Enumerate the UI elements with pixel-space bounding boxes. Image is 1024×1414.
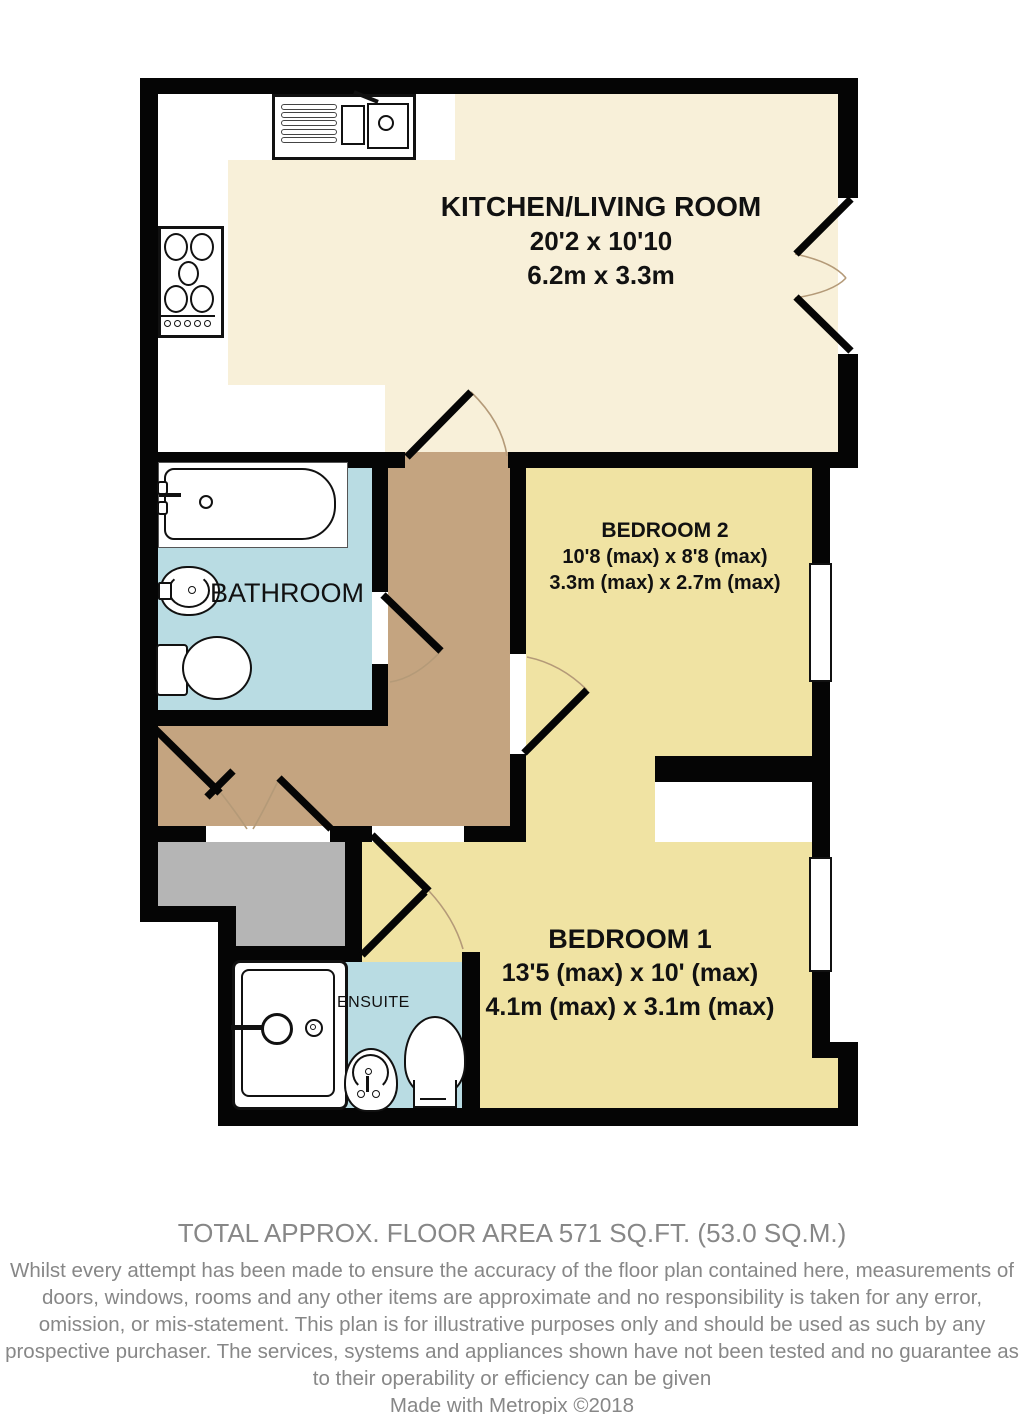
shower-head-icon: [261, 1013, 293, 1045]
wall-hall-bottom-c: [464, 826, 526, 842]
wall-hall-bottom-a: [150, 826, 206, 842]
shower-tray: [232, 960, 348, 1110]
burner-icon: [164, 285, 188, 313]
burner-icon: [190, 233, 214, 261]
room-dims-imperial: 13'5 (max) x 10' (max): [420, 956, 840, 990]
room-dims-metric: 4.1m (max) x 3.1m (max): [420, 990, 840, 1024]
room-name: KITCHEN/LIVING ROOM: [431, 190, 771, 224]
bath-drain-icon: [199, 495, 213, 509]
bedroom2-floor: [526, 468, 812, 758]
wall-bed1-top: [655, 756, 812, 782]
footer: TOTAL APPROX. FLOOR AREA 571 SQ.FT. (53.…: [0, 1218, 1024, 1414]
tub-shape: [164, 468, 336, 540]
floorplan-canvas: KITCHEN/LIVING ROOM 20'2 x 10'10 6.2m x …: [0, 0, 1024, 1414]
room-name: BEDROOM 1: [420, 922, 840, 956]
wall-landing-right: [345, 842, 362, 946]
wall-kitchen-bottom-right: [508, 452, 812, 468]
bathroom-label: BATHROOM: [210, 578, 380, 609]
wall-bottom: [218, 1108, 858, 1126]
room-name: BEDROOM 2: [515, 518, 815, 544]
ensuite-washbasin: [344, 1048, 398, 1112]
room-name: ENSUITE: [337, 994, 427, 1012]
wall-top: [140, 78, 858, 94]
wall-right-kitchen-lower: [838, 354, 858, 468]
metropix-credit: Made with Metropix ©2018: [0, 1392, 1024, 1414]
hob-controls: [161, 315, 215, 329]
sink-divider: [341, 105, 365, 145]
burner-icon: [178, 261, 199, 286]
bedroom1-lobe-floor: [526, 758, 655, 842]
bedroom1-label: BEDROOM 1 13'5 (max) x 10' (max) 4.1m (m…: [420, 922, 840, 1024]
sink-drain-icon: [378, 115, 394, 131]
ensuite-label: ENSUITE: [337, 994, 427, 1012]
wall-bathroom-right-upper: [372, 468, 388, 592]
bathroom-toilet-bowl: [182, 636, 252, 700]
room-dims-metric: 3.3m (max) x 2.7m (max): [515, 570, 815, 596]
ensuite-basin-tap-icon: [366, 1076, 369, 1092]
basin-tap-icon: [158, 582, 172, 600]
room-name: BATHROOM: [210, 578, 380, 609]
bath-tap-knob: [157, 501, 168, 515]
drainer-lines-icon: [281, 104, 337, 146]
room-dims-metric: 6.2m x 3.3m: [431, 258, 771, 292]
wall-right-jog-top: [812, 452, 858, 468]
kitchen-counter-corner: [228, 385, 385, 452]
burner-icon: [190, 285, 214, 313]
wall-hall-bottom-b: [330, 826, 372, 842]
ensuite-toilet-base: [413, 1080, 457, 1108]
wall-right-lowest: [838, 1042, 858, 1122]
total-area-line: TOTAL APPROX. FLOOR AREA 571 SQ.FT. (53.…: [0, 1218, 1024, 1249]
landing-floor-lower: [235, 842, 345, 946]
kitchen-sink-unit: [272, 94, 416, 160]
shower-arm-icon: [231, 1025, 265, 1030]
wall-bathroom-bottom: [150, 710, 384, 726]
room-dims-imperial: 20'2 x 10'10: [431, 224, 771, 258]
wall-left: [140, 78, 158, 922]
wall-right-kitchen-upper: [838, 78, 858, 198]
hallway-floor-lower: [158, 726, 510, 826]
bedroom2-label: BEDROOM 2 10'8 (max) x 8'8 (max) 3.3m (m…: [515, 518, 815, 596]
kitchen-living-label: KITCHEN/LIVING ROOM 20'2 x 10'10 6.2m x …: [431, 190, 771, 292]
basin-drain-icon: [188, 586, 196, 594]
room-dims-imperial: 10'8 (max) x 8'8 (max): [515, 544, 815, 570]
disclaimer-text: Whilst every attempt has been made to en…: [4, 1257, 1020, 1392]
wall-right-mid: [812, 680, 830, 857]
bedroom1-floor-bottom: [480, 1042, 838, 1108]
burner-icon: [164, 233, 188, 261]
bath-tap-knob: [157, 481, 168, 495]
hob-cooktop: [158, 226, 224, 338]
bathtub: [158, 462, 348, 548]
